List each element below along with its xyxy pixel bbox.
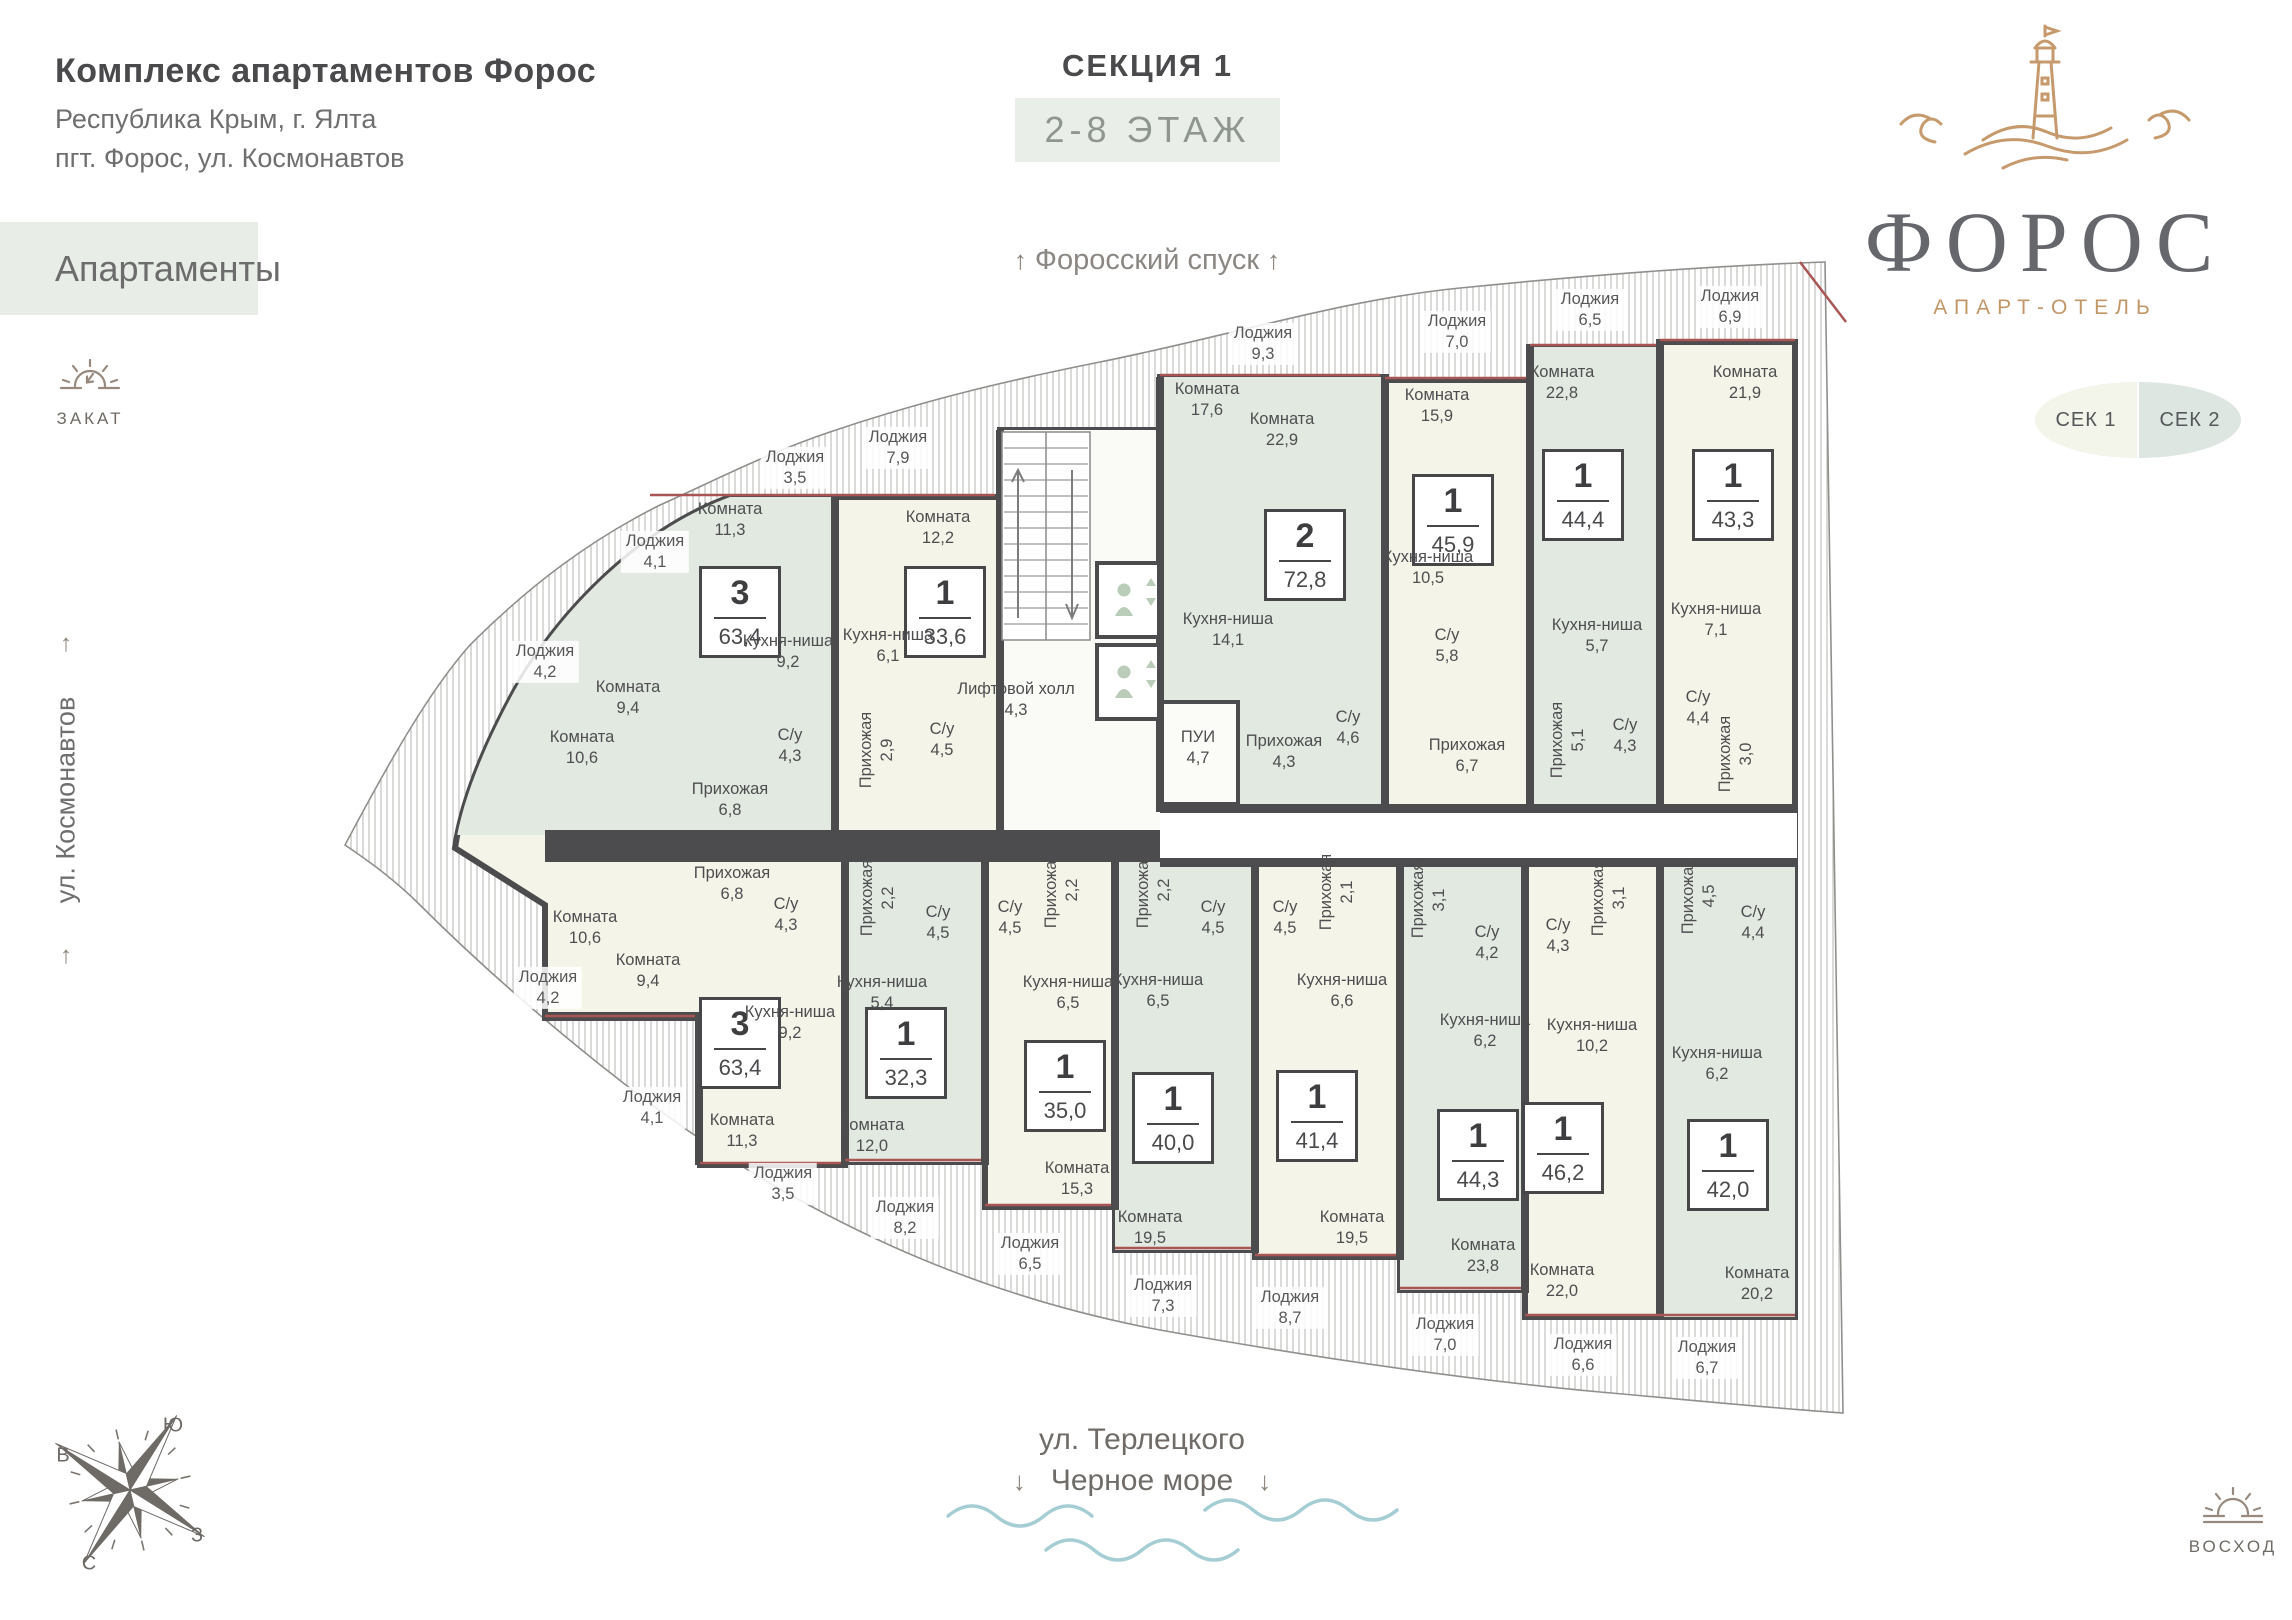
street-forosskiy-label: Форосский спуск xyxy=(1035,244,1259,276)
up-arrow-icon: ↑ xyxy=(1014,245,1027,275)
compass: В Ю З С xyxy=(45,1398,215,1583)
sunrise-label: ВОСХОД xyxy=(2168,1537,2292,1557)
address-line1: Республика Крым, г. Ялта xyxy=(55,100,405,139)
elevator-icon xyxy=(1097,563,1159,637)
compass-south: Ю xyxy=(163,1415,183,1438)
apartments-tag-label: Апартаменты xyxy=(55,248,281,290)
compass-north: С xyxy=(82,1553,96,1576)
street-forosskiy: ↑ Форосский спуск ↑ xyxy=(947,244,1347,277)
corridor xyxy=(1160,812,1797,860)
page-title: Комплекс апартаментов Форос xyxy=(55,52,596,91)
up-arrow-icon: ↑ xyxy=(1267,245,1280,275)
sunset-marker: ЗАКАТ xyxy=(25,352,155,429)
page: 363,4Комната11,3Кухня-ниша9,2Комната9,4К… xyxy=(0,0,2292,1620)
sunset-label: ЗАКАТ xyxy=(25,409,155,429)
party-wall xyxy=(545,830,1160,862)
stairs-icon xyxy=(1002,432,1090,640)
up-arrow-icon: ↑ xyxy=(60,630,72,658)
pui-room xyxy=(1162,702,1238,804)
compass-west: З xyxy=(191,1525,203,1548)
floor-range: 2-8 ЭТАЖ xyxy=(1015,98,1280,162)
up-arrow-icon: ↑ xyxy=(60,942,72,970)
section-title: СЕКЦИЯ 1 xyxy=(1015,48,1280,84)
street-kosmonavtov-label: ул. Космонавтов xyxy=(51,697,82,904)
street-terletskogo: ул. Терлецкого ↓ Черное море ↓ xyxy=(932,1420,1352,1501)
logo-subtitle: АПАРТ-ОТЕЛЬ xyxy=(1850,296,2240,320)
floor-range-label: 2-8 ЭТАЖ xyxy=(1045,109,1251,151)
street-terletskogo-label: ул. Терлецкого xyxy=(932,1420,1352,1461)
compass-icon xyxy=(45,1398,215,1583)
lighthouse-logo-icon xyxy=(1865,20,2225,190)
compass-east: В xyxy=(56,1445,69,1468)
sunrise-icon xyxy=(2198,1480,2268,1528)
address: Республика Крым, г. Ялта пгт. Форос, ул.… xyxy=(55,100,405,178)
address-line2: пгт. Форос, ул. Космонавтов xyxy=(55,139,405,178)
elevator-icon xyxy=(1097,645,1159,719)
apartments-tag: Апартаменты xyxy=(0,222,258,315)
sunset-icon xyxy=(55,352,125,400)
street-kosmonavtov: ↑ ул. Космонавтов ↑ xyxy=(22,640,110,960)
logo-name: ФОРОС xyxy=(1850,192,2240,292)
sunrise-marker: ВОСХОД xyxy=(2168,1480,2292,1557)
section-switcher: СЕК 1 СЕК 2 xyxy=(2035,382,2241,458)
sea-waves-icon xyxy=(930,1490,1450,1570)
